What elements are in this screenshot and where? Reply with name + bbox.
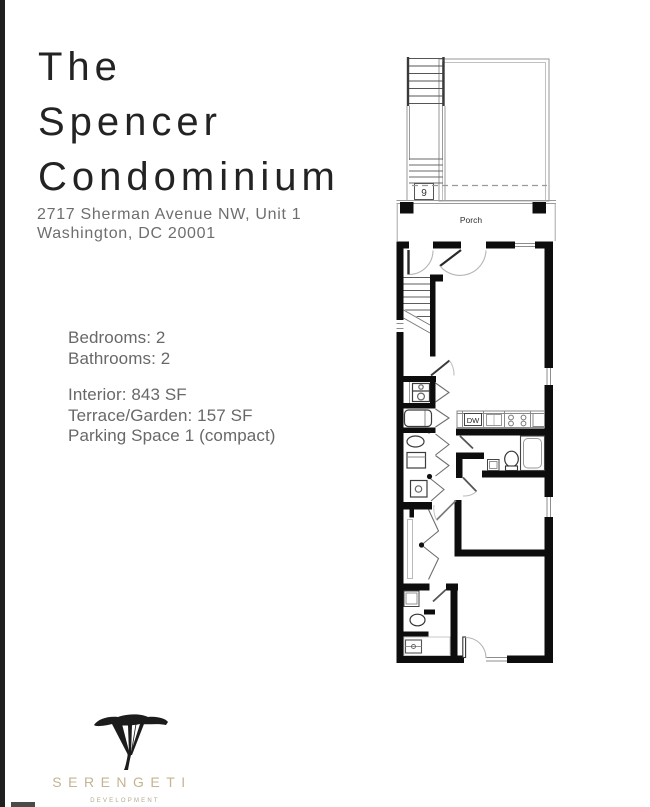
svg-text:Porch: Porch (460, 215, 482, 225)
svg-text:DW: DW (467, 416, 480, 425)
svg-text:9: 9 (421, 188, 427, 199)
